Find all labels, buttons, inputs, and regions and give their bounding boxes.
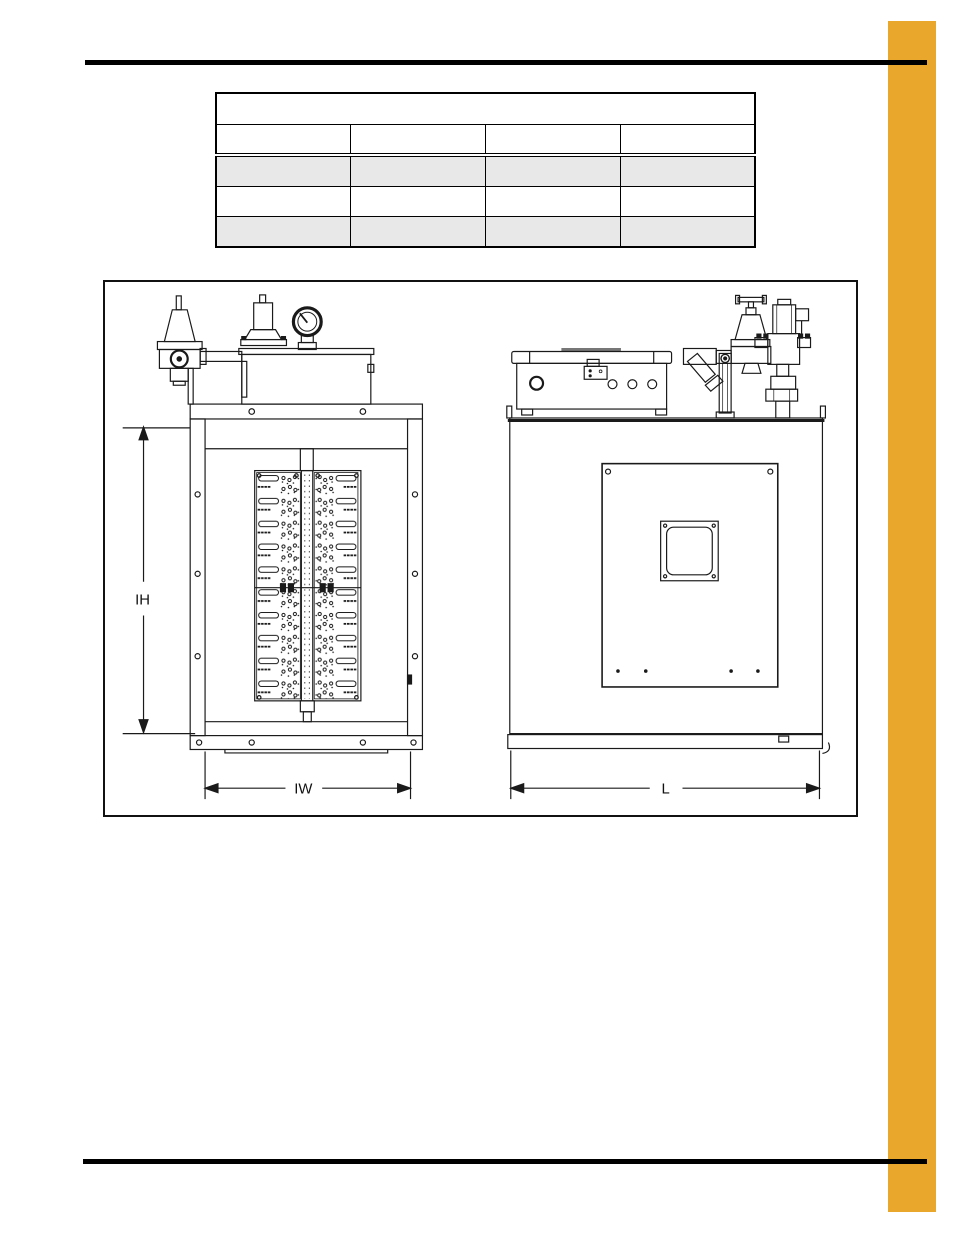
spec-table-cell (620, 187, 755, 217)
ih-dimension: IH (123, 427, 195, 734)
spec-table-cell (216, 187, 351, 217)
spec-table-cell (216, 217, 351, 248)
accent-bar (888, 21, 936, 1212)
technical-drawing: IH IW (105, 282, 856, 815)
spec-table-title-row (216, 93, 755, 125)
gas-manifold (239, 349, 374, 405)
pressure-gauge (293, 308, 321, 350)
spec-table-cell (620, 217, 755, 248)
spec-table-row (216, 155, 755, 187)
top-rule (85, 60, 927, 65)
spec-table-header-cell (620, 125, 755, 156)
manual-page: IH IW (0, 0, 954, 1235)
spec-table-cell (351, 155, 486, 187)
front-view: IH IW (123, 295, 423, 799)
heater-body (507, 406, 830, 753)
spec-table-cell (216, 155, 351, 187)
spec-table-cell (351, 217, 486, 248)
spec-table (215, 92, 756, 248)
spec-table-cell (351, 187, 486, 217)
spec-table-header-cell (216, 125, 351, 156)
dimension-figure: IH IW (103, 280, 858, 817)
inner-height-label: IH (135, 593, 150, 609)
spec-table-row (216, 187, 755, 217)
iw-dimension: IW (205, 751, 410, 799)
side-view: L (507, 295, 830, 799)
spec-table-header-cell (486, 125, 621, 156)
spec-table-header-cell (351, 125, 486, 156)
l-dimension: L (511, 750, 820, 799)
spec-table-title-cell (216, 93, 755, 125)
spec-table-cell (486, 217, 621, 248)
control-box (512, 348, 672, 415)
spec-table-cell (486, 155, 621, 187)
spec-table-cell (486, 187, 621, 217)
spec-table-header-row (216, 125, 755, 156)
access-panel (661, 521, 719, 581)
solenoid-coil (773, 299, 809, 333)
spec-table-row (216, 217, 755, 248)
inner-width-label: IW (294, 782, 312, 798)
length-label: L (661, 782, 669, 798)
burner-plate (255, 449, 361, 722)
spec-table-cell (620, 155, 755, 187)
pressure-regulator (157, 296, 241, 404)
y-strainer (683, 349, 722, 392)
bottom-rule (83, 1159, 927, 1164)
solenoid-valve (241, 295, 287, 346)
